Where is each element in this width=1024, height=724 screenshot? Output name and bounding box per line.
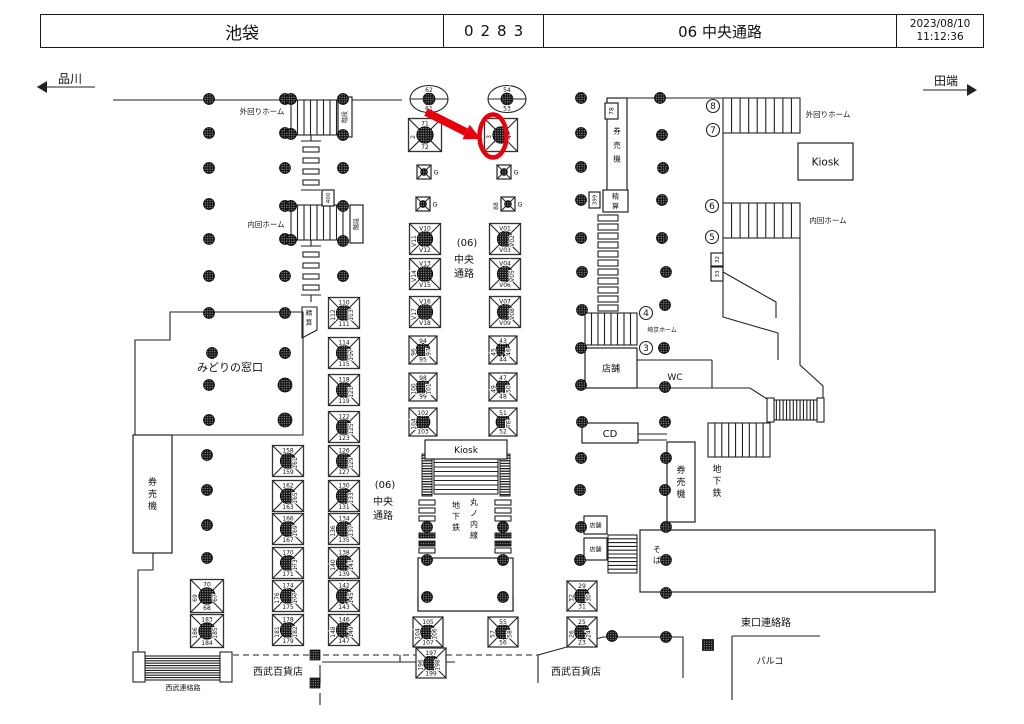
svg-text:130: 130 — [338, 483, 350, 490]
pillar — [417, 266, 433, 282]
pillar — [498, 555, 509, 566]
ad-sign-box: V16V18V17 — [410, 297, 441, 328]
pillar — [575, 555, 586, 566]
pillar — [577, 417, 588, 428]
pillar — [286, 235, 297, 246]
stairs — [608, 535, 637, 573]
pillar — [661, 555, 672, 566]
ad-sign-box: 178179181182 — [273, 615, 304, 646]
svg-text:133: 133 — [348, 492, 355, 504]
pillar — [575, 485, 586, 496]
ad-sign-box: 55565758 — [488, 617, 518, 647]
svg-text:43: 43 — [499, 338, 507, 345]
pillar — [661, 632, 672, 643]
platform-number: 4 — [640, 307, 653, 320]
platform-number: 5 — [706, 231, 719, 244]
pillar — [280, 163, 291, 174]
pillar — [422, 522, 433, 533]
svg-text:29: 29 — [578, 583, 586, 590]
svg-text:階段: 階段 — [341, 111, 349, 123]
svg-text:137: 137 — [348, 525, 355, 537]
ad-sign-box: 122123125 — [329, 412, 360, 443]
map-label: 内回ホーム — [247, 219, 284, 229]
svg-text:V10: V10 — [419, 226, 431, 233]
map-label: 丸ノ内線 — [470, 497, 478, 540]
ellipse-pillar-sign: 6261 — [410, 86, 448, 113]
map-box: 精算 — [603, 190, 628, 212]
ad-sign-box: 29313230 — [567, 581, 597, 611]
svg-text:119: 119 — [338, 398, 350, 405]
pillar — [204, 163, 215, 174]
svg-text:111: 111 — [338, 321, 350, 328]
svg-text:136: 136 — [330, 525, 337, 537]
svg-text:丸: 丸 — [470, 497, 478, 507]
svg-text:126: 126 — [338, 448, 350, 455]
stair-cap — [220, 652, 232, 682]
svg-text:品川: 品川 — [58, 72, 82, 86]
ad-sign-box: V07V09V08 — [490, 297, 521, 328]
svg-text:129: 129 — [348, 457, 355, 469]
svg-text:183: 183 — [201, 617, 213, 624]
svg-text:139: 139 — [338, 571, 350, 578]
pillar — [417, 304, 433, 320]
pillar — [498, 592, 509, 603]
ad-sign-box: 146147148149 — [329, 615, 360, 646]
pillar — [657, 233, 668, 244]
svg-text:地: 地 — [712, 463, 721, 475]
svg-text:196: 196 — [417, 659, 424, 671]
svg-text:算: 算 — [612, 201, 619, 210]
svg-text:179: 179 — [282, 638, 294, 645]
direction-right-label: 田端 — [934, 74, 958, 88]
svg-text:中央: 中央 — [373, 495, 393, 508]
svg-text:7: 7 — [710, 126, 716, 136]
svg-text:WC: WC — [667, 373, 682, 383]
pillar — [286, 94, 297, 105]
svg-text:TC: TC — [506, 420, 513, 429]
stairs — [708, 423, 770, 457]
svg-text:G: G — [433, 169, 438, 177]
pillar — [657, 195, 668, 206]
svg-text:50: 50 — [506, 385, 513, 393]
svg-text:外回りホーム: 外回りホーム — [240, 106, 285, 116]
map-box — [640, 530, 935, 592]
platform-number: 7 — [707, 124, 720, 137]
ad-sign-box: V13V15V14 — [410, 259, 441, 290]
svg-text:線: 線 — [470, 530, 478, 540]
svg-text:72: 72 — [421, 144, 429, 151]
pillar — [501, 93, 513, 105]
ad-sign-box: V04V06V05 — [490, 259, 521, 290]
ad-sign-box: 183184186185 — [191, 615, 224, 648]
map-label: 西武百貨店 — [253, 665, 303, 678]
pillar — [659, 343, 670, 354]
pillar — [338, 163, 349, 174]
svg-text:階段: 階段 — [353, 218, 361, 230]
ad-sign-box: V01V03V02 — [490, 224, 521, 255]
svg-text:V08: V08 — [509, 308, 516, 320]
svg-text:158: 158 — [282, 448, 294, 455]
svg-text:下: 下 — [712, 477, 721, 487]
svg-text:95: 95 — [419, 357, 427, 364]
svg-text:V16: V16 — [419, 299, 431, 306]
svg-text:V06: V06 — [499, 282, 511, 289]
svg-text:田端: 田端 — [934, 74, 958, 88]
pillar — [655, 93, 666, 104]
map-label: 通路 — [454, 267, 474, 280]
svg-text:110: 110 — [338, 300, 350, 307]
svg-text:177: 177 — [292, 592, 299, 604]
svg-text:52: 52 — [499, 429, 507, 436]
map-box: CD — [582, 423, 638, 443]
stair-cap — [133, 652, 145, 682]
ad-sign-box: 197199196198 — [416, 648, 446, 678]
svg-text:47: 47 — [499, 375, 507, 382]
pillar — [204, 415, 215, 426]
svg-text:店舗: 店舗 — [602, 362, 620, 374]
svg-text:V18: V18 — [419, 320, 431, 327]
ad-sign-box: 166167169 — [273, 514, 304, 545]
ad-sign-box: 105107104106 — [413, 617, 443, 647]
svg-text:141: 141 — [348, 559, 355, 571]
svg-text:G: G — [432, 201, 437, 209]
stair-cap — [817, 398, 824, 422]
svg-text:97: 97 — [426, 348, 433, 356]
pillar — [204, 199, 215, 210]
svg-text:184: 184 — [201, 640, 213, 647]
svg-text:78: 78 — [609, 107, 616, 115]
svg-text:171: 171 — [282, 571, 294, 578]
map-box: Kiosk — [798, 143, 853, 180]
arrow-left-icon — [37, 81, 47, 93]
svg-text:店舗: 店舗 — [589, 545, 601, 553]
svg-text:V13: V13 — [419, 261, 431, 268]
svg-text:162: 162 — [282, 483, 294, 490]
pillar — [204, 234, 215, 245]
map-box: 店舗 — [585, 348, 637, 388]
ad-sign-box: 47484950 — [489, 373, 517, 401]
svg-text:140: 140 — [330, 559, 337, 571]
pillar — [280, 348, 291, 359]
pillar — [501, 169, 508, 176]
stairs — [723, 203, 800, 238]
stairs — [773, 400, 817, 420]
svg-text:102: 102 — [417, 410, 429, 417]
svg-text:56: 56 — [499, 640, 507, 647]
svg-text:148: 148 — [330, 626, 337, 638]
svg-text:176: 176 — [274, 592, 281, 604]
svg-text:5: 5 — [709, 233, 715, 243]
pillar — [338, 201, 349, 212]
svg-text:69: 69 — [192, 594, 199, 602]
svg-text:V15: V15 — [419, 282, 431, 289]
stairs — [145, 656, 220, 680]
pillar — [338, 130, 349, 141]
svg-text:V14: V14 — [411, 270, 418, 282]
svg-text:西武連絡路: 西武連絡路 — [166, 683, 201, 692]
pillar — [660, 300, 671, 311]
pillar — [576, 380, 587, 391]
escalator-strip — [422, 454, 432, 496]
svg-text:165: 165 — [292, 492, 299, 504]
ad-sign-box: 158159161 — [273, 446, 304, 477]
svg-text:鉄: 鉄 — [712, 487, 721, 499]
ad-sign-box: 142143145 — [329, 581, 360, 612]
svg-text:159: 159 — [282, 469, 294, 476]
pillar — [286, 129, 297, 140]
pillar — [278, 378, 292, 392]
map-box: 券売機 — [133, 435, 172, 553]
svg-text:機: 機 — [676, 488, 685, 500]
ad-sign-box: 102103104 — [409, 408, 437, 436]
svg-text:58: 58 — [507, 630, 514, 638]
svg-text:西武百貨店: 西武百貨店 — [551, 665, 601, 678]
svg-text:135: 135 — [338, 537, 350, 544]
ad-sign-box: 110111112113 — [329, 298, 360, 329]
ad-sign-box: 94959697 — [409, 336, 437, 364]
pillar — [661, 267, 672, 278]
svg-text:8: 8 — [710, 102, 716, 112]
svg-text:125: 125 — [348, 423, 355, 435]
svg-text:そ: そ — [653, 545, 661, 554]
svg-text:142: 142 — [338, 583, 350, 590]
svg-text:通路: 通路 — [454, 267, 474, 280]
svg-text:32: 32 — [568, 594, 575, 602]
svg-text:175: 175 — [282, 604, 294, 611]
ad-sign-box: 9899100101 — [409, 373, 437, 401]
svg-text:機: 機 — [148, 500, 157, 512]
pillar — [202, 485, 213, 496]
station-map: KioskKioskCD店舗店舗店舗店舗券売機券売機券売機精算783994003… — [0, 0, 1024, 724]
svg-text:51: 51 — [499, 410, 507, 417]
svg-text:143: 143 — [338, 604, 350, 611]
ad-sign-box: 138139140141 — [329, 548, 360, 579]
svg-text:113: 113 — [348, 309, 355, 321]
g-sign-box: G — [416, 197, 438, 211]
platform-number: 3 — [640, 342, 653, 355]
map-box: 券売機 — [667, 442, 695, 522]
svg-text:鉄: 鉄 — [452, 522, 460, 532]
map-label: 東口連絡路 — [741, 616, 791, 629]
svg-text:146: 146 — [338, 617, 350, 624]
svg-text:ば: ば — [653, 556, 661, 565]
ad-sign-box: 71722 — [409, 119, 442, 152]
svg-text:V03: V03 — [499, 247, 511, 254]
stairs — [291, 205, 343, 240]
pillar — [576, 233, 587, 244]
svg-text:149: 149 — [348, 626, 355, 638]
pillar — [420, 201, 427, 208]
svg-text:67: 67 — [212, 594, 219, 602]
svg-text:88: 88 — [493, 202, 500, 210]
pillar — [576, 162, 587, 173]
step-marks — [598, 215, 618, 311]
pillar — [660, 417, 671, 428]
ad-sign-box: 134135136137 — [329, 514, 360, 545]
svg-text:104: 104 — [414, 628, 421, 640]
pillar — [202, 553, 213, 564]
step-marks — [303, 147, 319, 185]
pillar — [577, 305, 588, 316]
pillar — [661, 453, 672, 464]
svg-text:下: 下 — [452, 512, 460, 521]
svg-text:138: 138 — [338, 550, 350, 557]
svg-text:48: 48 — [499, 394, 507, 401]
svg-text:174: 174 — [282, 583, 294, 590]
pillar — [423, 93, 435, 105]
pillar — [202, 450, 213, 461]
ad-sign-box: V10V12V11 — [410, 224, 441, 255]
platform-number: 6 — [706, 200, 719, 213]
svg-text:精: 精 — [306, 308, 313, 317]
svg-text:121: 121 — [348, 386, 355, 398]
ad-sign-box: 174175176177 — [273, 581, 304, 612]
svg-text:算: 算 — [306, 318, 313, 327]
svg-text:182: 182 — [292, 626, 299, 638]
svg-text:埼京ホーム: 埼京ホーム — [647, 326, 677, 334]
svg-text:6: 6 — [709, 202, 715, 212]
svg-text:127: 127 — [338, 469, 350, 476]
svg-text:45: 45 — [490, 348, 497, 356]
pillar — [422, 592, 433, 603]
svg-text:CD: CD — [603, 429, 618, 440]
svg-text:店舗: 店舗 — [589, 521, 601, 529]
svg-text:地: 地 — [452, 500, 460, 510]
svg-text:161: 161 — [292, 457, 299, 469]
svg-text:178: 178 — [282, 617, 294, 624]
svg-text:32: 32 — [715, 256, 721, 263]
svg-text:166: 166 — [282, 516, 294, 523]
svg-text:券: 券 — [148, 476, 157, 488]
svg-text:パルコ: パルコ — [757, 656, 784, 667]
svg-text:西武百貨店: 西武百貨店 — [253, 665, 303, 678]
svg-text:(06): (06) — [457, 238, 478, 249]
svg-text:399: 399 — [592, 194, 598, 205]
svg-text:68: 68 — [203, 605, 211, 612]
svg-text:53: 53 — [503, 106, 511, 113]
svg-text:118: 118 — [338, 377, 350, 384]
pillar — [204, 128, 215, 139]
svg-text:23: 23 — [578, 640, 586, 647]
g-sign-box: G — [417, 165, 439, 179]
svg-text:181: 181 — [274, 626, 281, 638]
svg-text:170: 170 — [282, 550, 294, 557]
map-label: 西武連絡路 — [166, 683, 201, 692]
svg-text:105: 105 — [422, 619, 434, 626]
svg-text:3: 3 — [643, 344, 649, 354]
svg-text:Kiosk: Kiosk — [812, 156, 841, 168]
svg-text:114: 114 — [338, 340, 350, 347]
svg-text:V12: V12 — [419, 247, 431, 254]
map-box: 店舗 — [584, 538, 607, 560]
svg-text:30: 30 — [586, 594, 593, 602]
pillar — [204, 380, 215, 391]
map-box: 78 — [605, 103, 618, 119]
svg-text:70: 70 — [203, 582, 211, 589]
direction-left-label: 品川 — [58, 72, 82, 86]
map-label: 外回りホーム — [240, 106, 285, 116]
square-pillar — [310, 678, 320, 688]
stairs — [723, 98, 800, 133]
svg-text:123: 123 — [338, 435, 350, 442]
pillar — [204, 271, 215, 282]
svg-text:101: 101 — [426, 383, 433, 395]
svg-text:94: 94 — [419, 338, 427, 345]
map-label: 地下鉄 — [712, 463, 721, 499]
ad-sign-box: 170171173 — [273, 548, 304, 579]
ad-sign-box: 130131133 — [329, 481, 360, 512]
map-label: (06) — [375, 480, 396, 491]
svg-text:163: 163 — [282, 504, 294, 511]
svg-text:122: 122 — [338, 414, 350, 421]
square-pillar — [310, 650, 320, 660]
svg-text:ノ: ノ — [470, 509, 478, 518]
station-map-viewer: 池袋 0283 06 中央通路 2023/08/10 11:12:36 Kios… — [0, 0, 1024, 724]
map-box: 32 — [711, 253, 723, 266]
svg-text:115: 115 — [338, 361, 350, 368]
svg-text:197: 197 — [425, 650, 437, 657]
svg-text:31: 31 — [578, 604, 586, 611]
pillar — [417, 127, 434, 144]
svg-text:169: 169 — [292, 525, 299, 537]
svg-text:117: 117 — [348, 349, 355, 361]
pillar — [576, 93, 587, 104]
svg-text:Kiosk: Kiosk — [454, 446, 479, 456]
pillar — [207, 348, 218, 359]
svg-text:G: G — [517, 201, 522, 209]
map-label: 通路 — [373, 509, 393, 522]
svg-text:精: 精 — [612, 191, 619, 200]
svg-text:G: G — [513, 169, 518, 177]
map-label: 精算 — [306, 308, 313, 327]
escalator-strip — [500, 454, 510, 496]
svg-text:外回りホーム: 外回りホーム — [806, 109, 851, 119]
svg-text:通路: 通路 — [373, 509, 393, 522]
pillar — [202, 520, 213, 531]
svg-text:V09: V09 — [499, 320, 511, 327]
pillar — [422, 555, 433, 566]
svg-text:55: 55 — [499, 619, 507, 626]
svg-text:57: 57 — [489, 630, 496, 638]
svg-text:2: 2 — [410, 135, 417, 139]
pillar — [417, 231, 433, 247]
svg-text:198: 198 — [435, 659, 442, 671]
pillar — [576, 195, 587, 206]
svg-text:V07: V07 — [499, 299, 511, 306]
svg-text:167: 167 — [282, 537, 294, 544]
pillar — [576, 522, 587, 533]
svg-text:134: 134 — [338, 516, 350, 523]
map-box: 店舗 — [584, 516, 607, 534]
pillar — [660, 485, 671, 496]
map-label: 中央 — [454, 253, 474, 266]
svg-text:112: 112 — [330, 309, 337, 321]
svg-text:71: 71 — [421, 121, 429, 128]
pillar — [576, 453, 587, 464]
stairs — [434, 458, 498, 494]
svg-text:98: 98 — [419, 375, 427, 382]
pillar — [658, 163, 669, 174]
svg-text:103: 103 — [417, 429, 429, 436]
svg-text:96: 96 — [410, 348, 417, 356]
svg-text:V04: V04 — [499, 261, 511, 268]
ad-sign-box: 126127129 — [329, 446, 360, 477]
svg-text:機: 機 — [613, 154, 621, 164]
svg-text:V17: V17 — [411, 308, 418, 320]
pillar — [577, 267, 588, 278]
svg-text:東口連絡路: 東口連絡路 — [741, 616, 791, 629]
svg-text:33: 33 — [715, 270, 721, 277]
